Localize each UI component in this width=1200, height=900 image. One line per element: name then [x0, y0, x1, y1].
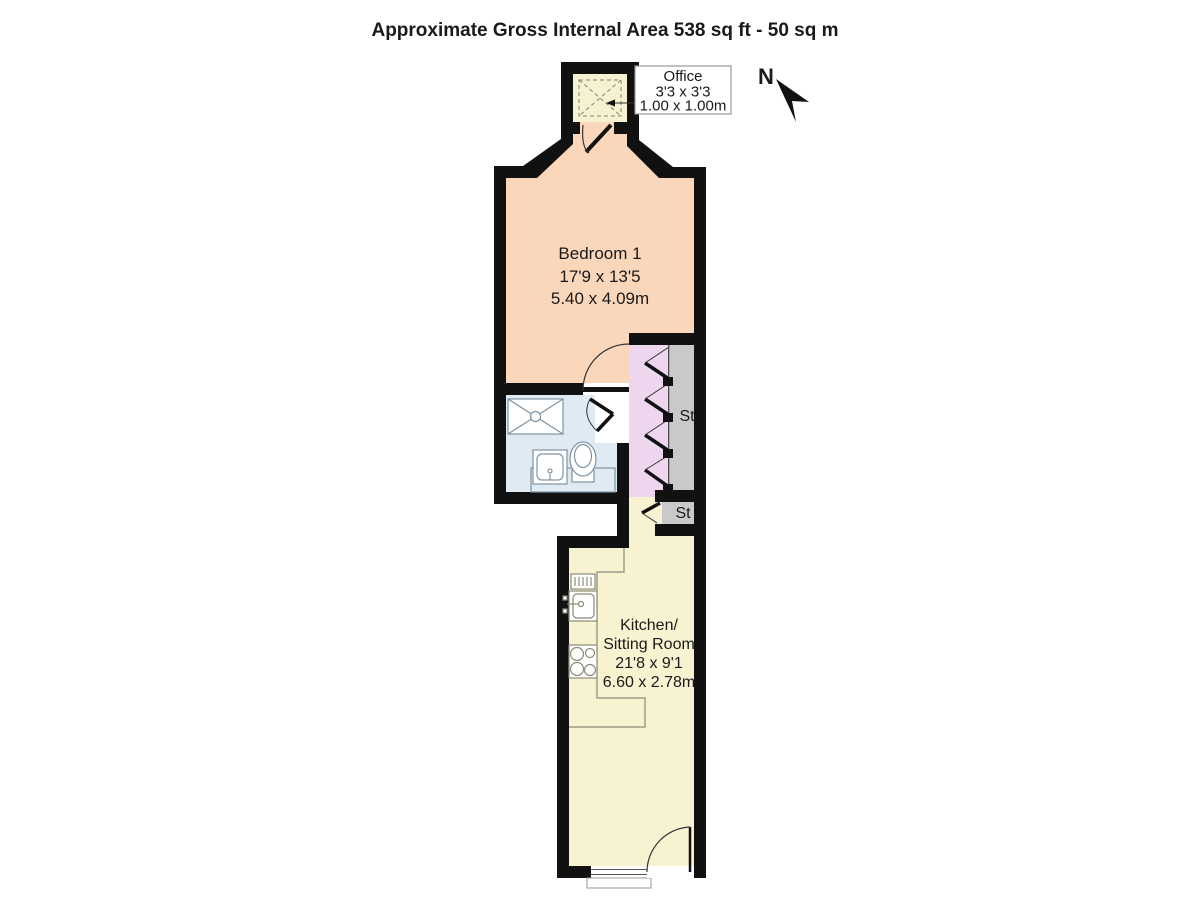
floorplan-canvas: Approximate Gross Internal Area 538 sq f…: [0, 0, 1200, 900]
hob-icon: [569, 645, 597, 678]
kitchen-name-line1: Kitchen/: [620, 617, 678, 634]
callout-room-name: Office: [664, 68, 703, 85]
storage-small-label: St: [675, 505, 691, 522]
kitchen-area-band: [655, 536, 694, 548]
kitchen-window: [587, 866, 651, 888]
north-compass: N: [758, 64, 809, 122]
floorplan-page: Approximate Gross Internal Area 538 sq f…: [0, 0, 1200, 900]
sink-icon: [533, 450, 567, 484]
bedroom-label: Bedroom 1 17'9 x 13'5 5.40 x 4.09m: [551, 244, 649, 308]
bedroom-dims-metric: 5.40 x 4.09m: [551, 289, 649, 308]
toilet-icon: [570, 442, 596, 482]
kitchen-dims-imperial: 21'8 x 9'1: [615, 655, 683, 672]
north-arrow-icon: [776, 79, 809, 122]
storage-large-label: St: [679, 408, 695, 425]
page-title: Approximate Gross Internal Area 538 sq f…: [371, 20, 838, 41]
shower-icon: [508, 399, 563, 434]
north-label: N: [758, 64, 774, 89]
bedroom-name: Bedroom 1: [558, 244, 641, 263]
bedroom-dims-imperial: 17'9 x 13'5: [559, 267, 640, 286]
kitchen-dims-metric: 6.60 x 2.78m: [603, 674, 696, 691]
kitchen-name-line2: Sitting Room: [603, 636, 695, 653]
vestibule-area: [595, 395, 629, 443]
drainer-icon: [571, 574, 595, 589]
callout-dims-metric: 1.00 x 1.00m: [640, 98, 727, 115]
